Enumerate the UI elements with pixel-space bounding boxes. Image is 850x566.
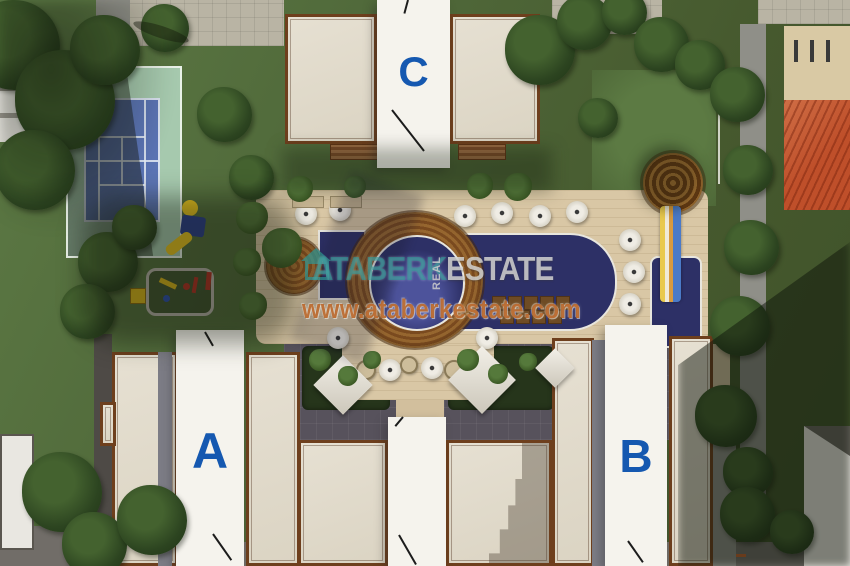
- watermark: ATABERK REAL ESTATE www.ataberkestate.co…: [0, 0, 850, 566]
- watermark-brand-primary: ATABERK: [312, 250, 446, 288]
- watermark-brand-secondary: ESTATE: [446, 250, 553, 288]
- watermark-brand-vertical: REAL: [431, 254, 443, 290]
- site-plan-render: C A B: [0, 0, 850, 566]
- watermark-website: www.ataberkestate.com: [302, 294, 581, 325]
